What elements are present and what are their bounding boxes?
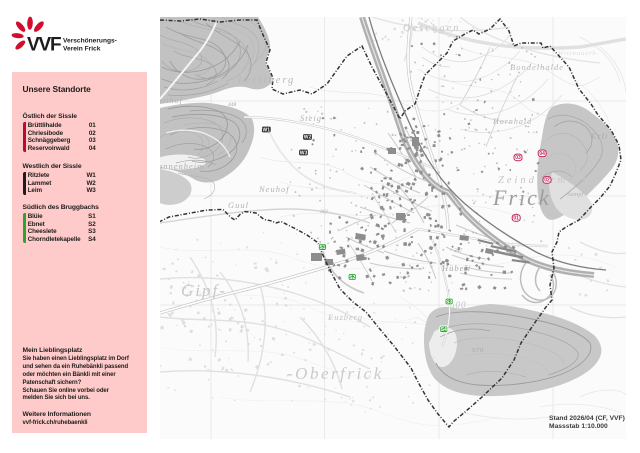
svg-text:Wittnauerh.: Wittnauerh.	[558, 50, 599, 57]
svg-text:W1: W1	[262, 127, 270, 133]
svg-text:utthof: utthof	[160, 96, 183, 105]
svg-text:Oeschgen: Oeschgen	[403, 23, 460, 34]
svg-text:Bondelhalde: Bondelhalde	[510, 62, 564, 72]
svg-text:Gipf-: Gipf-	[181, 281, 227, 300]
svg-text:S1: S1	[319, 245, 325, 251]
svg-text:301: 301	[319, 209, 329, 215]
svg-text:03: 03	[515, 155, 521, 161]
svg-text:VVF: VVF	[27, 35, 61, 56]
svg-text:Hornhald: Hornhald	[492, 117, 532, 126]
svg-text:Verschönerungs-: Verschönerungs-	[63, 38, 117, 45]
svg-text:448: 448	[228, 101, 237, 108]
svg-text:annenheim: annenheim	[160, 161, 204, 171]
svg-text:S4: S4	[440, 327, 446, 333]
svg-text:-Oberfrick: -Oberfrick	[287, 364, 384, 383]
svg-text:04: 04	[539, 151, 545, 157]
svg-text:Steig: Steig	[300, 113, 322, 123]
svg-text:Hübeli: Hübeli	[441, 263, 471, 273]
svg-text:W2: W2	[303, 135, 311, 141]
svg-text:Neuhof: Neuhof	[258, 184, 290, 194]
svg-text:Sumpf: Sumpf	[567, 191, 584, 198]
svg-text:Euzberg: Euzberg	[327, 312, 363, 322]
svg-text:Erli: Erli	[590, 131, 608, 141]
svg-text:Frick: Frick	[492, 185, 551, 210]
svg-text:S2: S2	[349, 275, 355, 281]
svg-text:Guul: Guul	[228, 200, 249, 210]
svg-text:01: 01	[513, 216, 519, 222]
svg-text:02: 02	[544, 178, 550, 184]
svg-text:Verein Frick: Verein Frick	[63, 46, 101, 53]
svg-text:S3: S3	[446, 299, 452, 305]
svg-text:Leisiberg: Leisiberg	[237, 75, 295, 86]
svg-text:W3: W3	[299, 150, 307, 156]
svg-text:570: 570	[472, 348, 484, 354]
svg-text:357: 357	[453, 248, 463, 254]
